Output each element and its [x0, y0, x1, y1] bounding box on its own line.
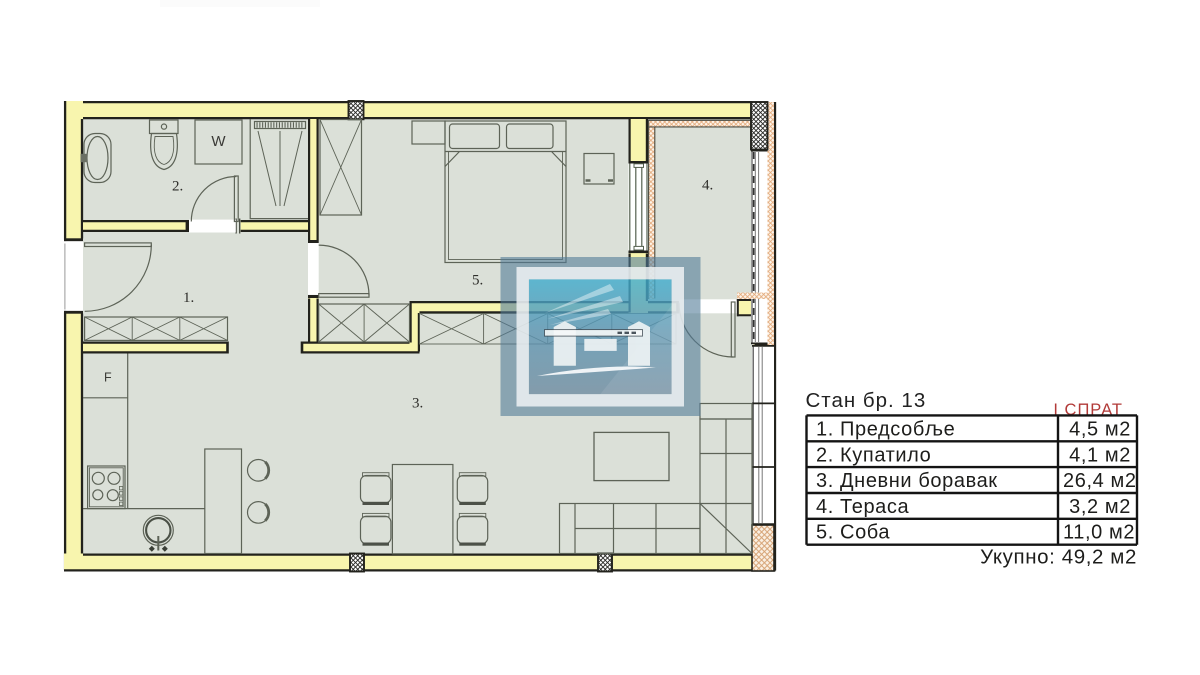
svg-text:4.: 4.: [702, 178, 713, 194]
svg-text:5. Соба: 5. Соба: [816, 522, 890, 544]
svg-text:2.: 2.: [172, 179, 183, 195]
svg-text:11,0 м2: 11,0 м2: [1063, 522, 1135, 544]
svg-text:5.: 5.: [472, 273, 483, 289]
svg-text:F: F: [104, 371, 112, 385]
svg-text:4,1 м2: 4,1 м2: [1069, 444, 1131, 466]
svg-text:W: W: [211, 133, 226, 150]
svg-text:26,4 м2: 26,4 м2: [1063, 470, 1137, 492]
svg-text:1.: 1.: [183, 290, 194, 306]
svg-text:3.: 3.: [412, 396, 423, 412]
svg-text:Стан бр. 13: Стан бр. 13: [806, 389, 927, 412]
svg-text:3,2 м2: 3,2 м2: [1069, 496, 1131, 518]
svg-text:1. Предсобље: 1. Предсобље: [816, 419, 955, 441]
svg-text:2. Купатило: 2. Купатило: [816, 444, 931, 466]
svg-text:Укупно: 49,2 м2: Укупно: 49,2 м2: [980, 546, 1137, 569]
svg-text:4,5 м2: 4,5 м2: [1069, 419, 1131, 441]
svg-text:3. Дневни боравак: 3. Дневни боравак: [816, 470, 998, 492]
svg-text:4. Тераса: 4. Тераса: [816, 496, 909, 518]
